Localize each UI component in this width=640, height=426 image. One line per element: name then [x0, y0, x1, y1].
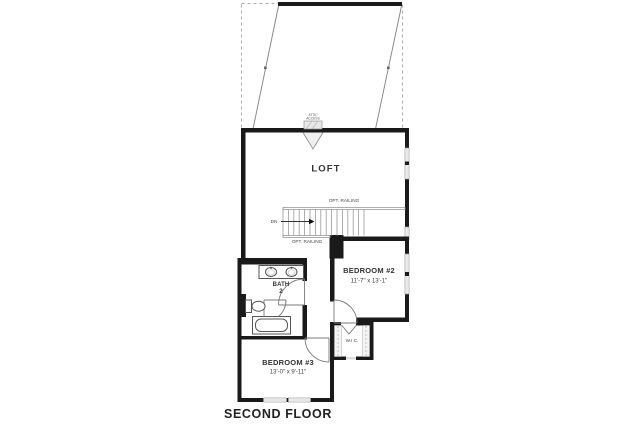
wic-bifold-door	[342, 325, 357, 334]
bedroom3-north-wall	[238, 336, 308, 340]
wic-west-wall	[330, 322, 335, 360]
bedroom3-label: BEDROOM #3	[262, 359, 314, 367]
staircase	[281, 208, 405, 238]
vanity-fixture	[259, 266, 304, 279]
bedroom2-dimensions: 11'-7" x 13'-1"	[351, 277, 387, 284]
bedroom3-dimensions: 13'-0" x 9'-11"	[270, 369, 306, 376]
opt-railing-label-top: OPT. RAILING	[329, 198, 360, 203]
bedroom2-north-wall	[341, 237, 409, 242]
bedroom2-door-arc	[334, 300, 357, 323]
bath-east-wall-lower	[303, 305, 308, 338]
bath-label: BATH 2	[273, 281, 290, 294]
opt-railing-label-bottom: OPT. RAILING	[292, 239, 323, 244]
bath-label-number: 2	[273, 288, 290, 295]
sink-icon	[266, 267, 277, 277]
wic-label: W.I.C.	[345, 338, 358, 343]
stair-treads	[288, 210, 364, 236]
floor-title: SECOND FLOOR	[224, 408, 332, 422]
floor-plan-page: LOFT BEDROOM #2 11'-7" x 13'-1" BATH 2 W…	[0, 0, 640, 426]
stair-railing-top	[283, 208, 405, 210]
attic-access-hatch-icon	[303, 121, 323, 149]
loft-label: LOFT	[311, 164, 340, 174]
wic-south-wall-gap	[346, 357, 356, 360]
roof-tick-right	[387, 67, 390, 70]
sink-icon	[286, 267, 297, 277]
wic-east-wall	[370, 322, 374, 360]
loft-window-right	[405, 148, 409, 179]
attic-access-label: ATTIC ACCESS	[306, 114, 320, 121]
bath-north-wall	[238, 258, 308, 265]
stair-railing-bottom	[283, 236, 330, 238]
toilet-fixture	[246, 300, 266, 313]
down-arrow	[281, 219, 315, 224]
bedroom2-west-wall	[330, 258, 335, 302]
bathtub-fixture	[253, 317, 291, 335]
stairs-dn-label: DN	[271, 219, 278, 224]
wic-south-wall-right	[356, 357, 374, 361]
bedroom2-south-wall	[356, 318, 409, 323]
roof-tick-left	[264, 67, 267, 70]
roof-outline	[242, 2, 403, 130]
bedroom3-east-wall	[330, 356, 334, 402]
floor-plan-drawing	[0, 0, 640, 426]
bedroom2-label: BEDROOM #2	[343, 267, 395, 275]
bedroom2-window-right	[405, 254, 409, 294]
